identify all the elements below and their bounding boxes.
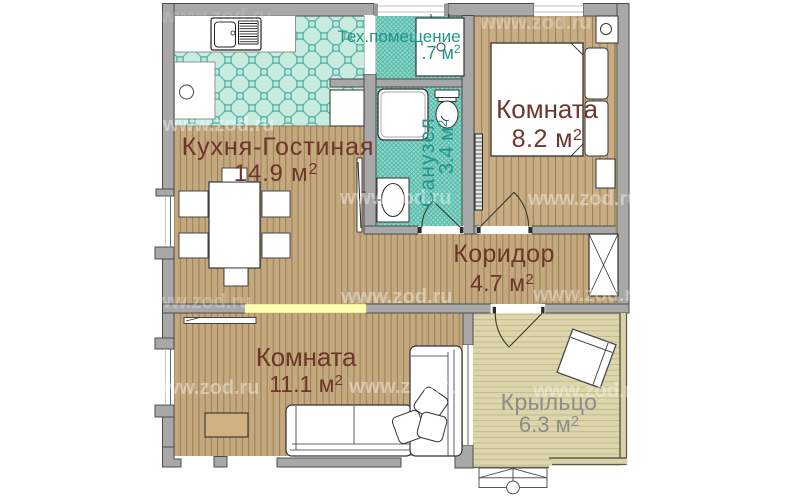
svg-text:3.4 м2: 3.4 м2 (435, 120, 458, 174)
svg-text:www.zod.ru: www.zod.ru (479, 12, 591, 34)
svg-text:www.zod.ru: www.zod.ru (147, 377, 259, 399)
svg-text:8.2 м2: 8.2 м2 (512, 125, 583, 153)
svg-text:www.zod.ru: www.zod.ru (339, 187, 451, 209)
svg-text:4.7 м2: 4.7 м2 (470, 270, 534, 296)
svg-text:www.zod.ru: www.zod.ru (532, 380, 644, 402)
svg-text:www.zod.ru: www.zod.ru (340, 286, 452, 308)
svg-text:www.zod.ru: www.zod.ru (527, 188, 639, 210)
svg-text:www.zod.ru: www.zod.ru (162, 114, 274, 136)
svg-text:14.9 м2: 14.9 м2 (234, 160, 318, 187)
svg-text:www.zod.ru: www.zod.ru (159, 6, 271, 28)
svg-text:11.1 м2: 11.1 м2 (269, 371, 343, 397)
svg-text:6.3 м2: 6.3 м2 (519, 412, 579, 437)
svg-text:Комната: Комната (496, 94, 598, 124)
svg-text:Кухня-Гостиная: Кухня-Гостиная (182, 133, 375, 161)
svg-text:Комната: Комната (256, 342, 357, 372)
svg-text:www.zod.ru: www.zod.ru (139, 291, 251, 313)
svg-text:www.zod.ru: www.zod.ru (348, 376, 460, 398)
svg-text:www.zod.ru: www.zod.ru (532, 284, 644, 306)
svg-text:Коридор: Коридор (453, 240, 555, 268)
